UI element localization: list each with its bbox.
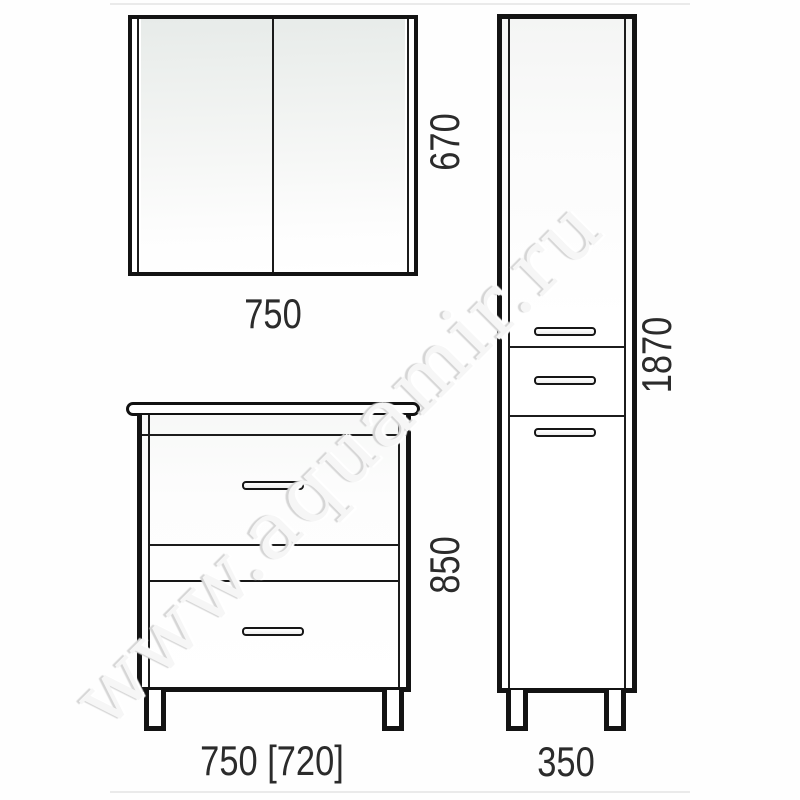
mirror-cabinet-mirror-doors: [141, 19, 405, 272]
furniture-dimension-diagram: www.aquamir.ru 750 670 850 750 [720] 187…: [0, 0, 800, 800]
vanity-countertop: [126, 402, 420, 416]
mirror-cabinet: [128, 15, 418, 276]
mirror-cabinet-door-divider-line: [272, 19, 274, 272]
vanity-drawer-divider-line-lower: [150, 580, 398, 582]
vanity-upper-drawer-handle: [242, 481, 304, 490]
tall-cabinet-left-frame-line: [508, 19, 510, 688]
tall-cabinet-width-label: 350: [537, 741, 594, 783]
vanity-left-leg: [144, 690, 166, 731]
tall-cabinet-divider-line-upper: [510, 346, 624, 348]
tall-cabinet-lower-door-handle: [534, 428, 596, 437]
vanity-left-frame-line: [148, 415, 150, 687]
vanity-top-rail-line: [142, 434, 406, 436]
vanity-height-label: 850: [424, 536, 466, 593]
tall-cabinet: [497, 14, 637, 693]
mirror-cabinet-left-side-panel-line: [137, 19, 139, 272]
tall-cabinet-right-frame-line: [624, 19, 626, 688]
tall-cabinet-drawer-handle: [534, 376, 596, 385]
vanity-cabinet: [137, 415, 411, 692]
mirror-cabinet-height-label: 670: [424, 113, 466, 170]
vanity-right-leg: [382, 690, 404, 731]
vanity-width-label: 750 [720]: [200, 740, 344, 782]
tall-cabinet-right-leg: [604, 690, 626, 731]
mirror-cabinet-width-label: 750: [244, 293, 301, 335]
mirror-cabinet-right-side-panel-line: [407, 19, 409, 272]
page-rule-top: [110, 3, 690, 5]
vanity-drawer-divider-line-upper: [150, 544, 398, 546]
tall-cabinet-left-leg: [506, 690, 528, 731]
tall-cabinet-upper-door-handle: [534, 327, 596, 336]
vanity-right-frame-line: [398, 415, 400, 687]
page-rule-bottom: [110, 791, 690, 793]
vanity-lower-drawer-handle: [242, 627, 304, 636]
tall-cabinet-divider-line-lower: [510, 415, 624, 417]
tall-cabinet-height-label: 1870: [636, 317, 678, 394]
